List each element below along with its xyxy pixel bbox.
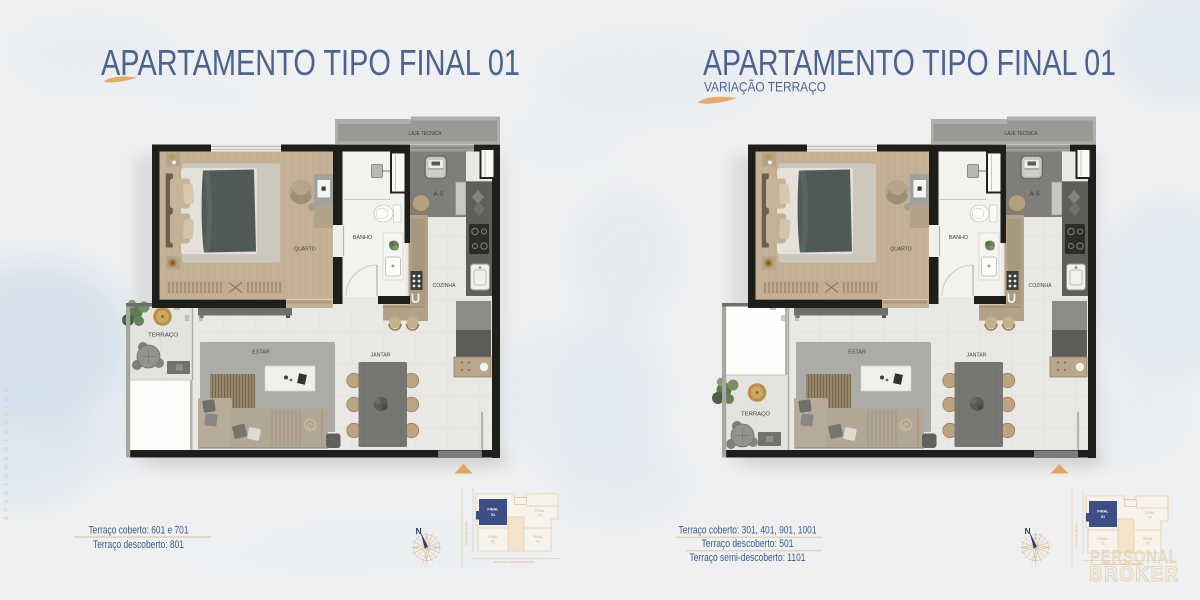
svg-text:Terraço descoberto: 501: Terraço descoberto: 501 [702,538,794,550]
svg-text:JANTAR: JANTAR [371,353,391,359]
svg-text:01: 01 [491,513,495,517]
svg-text:LAJE TÉCNICA: LAJE TÉCNICA [409,130,442,137]
svg-text:Terraço coberto: 301, 401, 901: Terraço coberto: 301, 401, 901, 1001 [679,525,817,537]
svg-text:N: N [1024,526,1030,536]
svg-text:FINAL: FINAL [1145,511,1155,515]
svg-text:VARIAÇÃO TERRAÇO: VARIAÇÃO TERRAÇO [704,80,826,95]
svg-text:03: 03 [1146,542,1150,546]
svg-text:LAJE TÉCNICA: LAJE TÉCNICA [1005,130,1038,137]
svg-text:03: 03 [536,540,540,544]
svg-text:01: 01 [1101,515,1105,519]
svg-text:FINAL: FINAL [487,508,499,512]
svg-text:Terraço semi-descoberto: 1101: Terraço semi-descoberto: 1101 [690,552,806,564]
svg-text:RUA ANNE FRANK: RUA ANNE FRANK [465,521,469,546]
svg-text:A.S: A.S [434,192,445,198]
svg-text:FINAL: FINAL [488,535,498,539]
svg-text:BROKER: BROKER [1089,562,1180,586]
svg-text:APARTAMENTO TIPO FINAL 01: APARTAMENTO TIPO FINAL 01 [101,42,520,83]
svg-text:RUA JOÃO GUIMARÃES ROSA: RUA JOÃO GUIMARÃES ROSA [494,559,535,564]
svg-text:02: 02 [1101,542,1105,546]
svg-text:Terraço coberto: 601 e 701: Terraço coberto: 601 e 701 [89,525,189,537]
svg-text:TERRAÇO: TERRAÇO [148,333,178,339]
svg-text:A P A R T A M E N T O S T I P: A P A R T A M E N T O S T I P O [4,386,10,520]
svg-text:A.S: A.S [1030,192,1041,198]
svg-text:04: 04 [538,514,542,518]
svg-text:COZINHA: COZINHA [433,283,457,289]
svg-text:FINAL: FINAL [1097,510,1109,514]
svg-text:COZINHA: COZINHA [1029,283,1053,289]
svg-text:QUARTO: QUARTO [294,247,316,253]
svg-text:APARTAMENTO TIPO FINAL 01: APARTAMENTO TIPO FINAL 01 [703,42,1116,83]
svg-text:Terraço descoberto: 801: Terraço descoberto: 801 [93,539,184,551]
svg-text:N: N [415,526,421,536]
svg-text:ESTAR: ESTAR [848,350,866,356]
svg-text:QUARTO: QUARTO [890,247,912,253]
svg-text:02: 02 [491,540,495,544]
svg-text:JANTAR: JANTAR [967,353,987,359]
svg-text:FINAL: FINAL [533,535,543,539]
svg-text:RUA ANNE FRANK: RUA ANNE FRANK [1075,523,1079,548]
svg-text:TERRAÇO: TERRAÇO [741,412,770,418]
svg-text:04: 04 [1148,516,1152,520]
svg-text:FINAL: FINAL [1098,537,1108,541]
svg-text:FINAL: FINAL [535,509,545,513]
svg-text:ESTAR: ESTAR [252,350,270,356]
svg-text:FINAL: FINAL [1143,537,1153,541]
svg-text:BANHO: BANHO [949,235,969,241]
svg-text:BANHO: BANHO [353,235,373,241]
